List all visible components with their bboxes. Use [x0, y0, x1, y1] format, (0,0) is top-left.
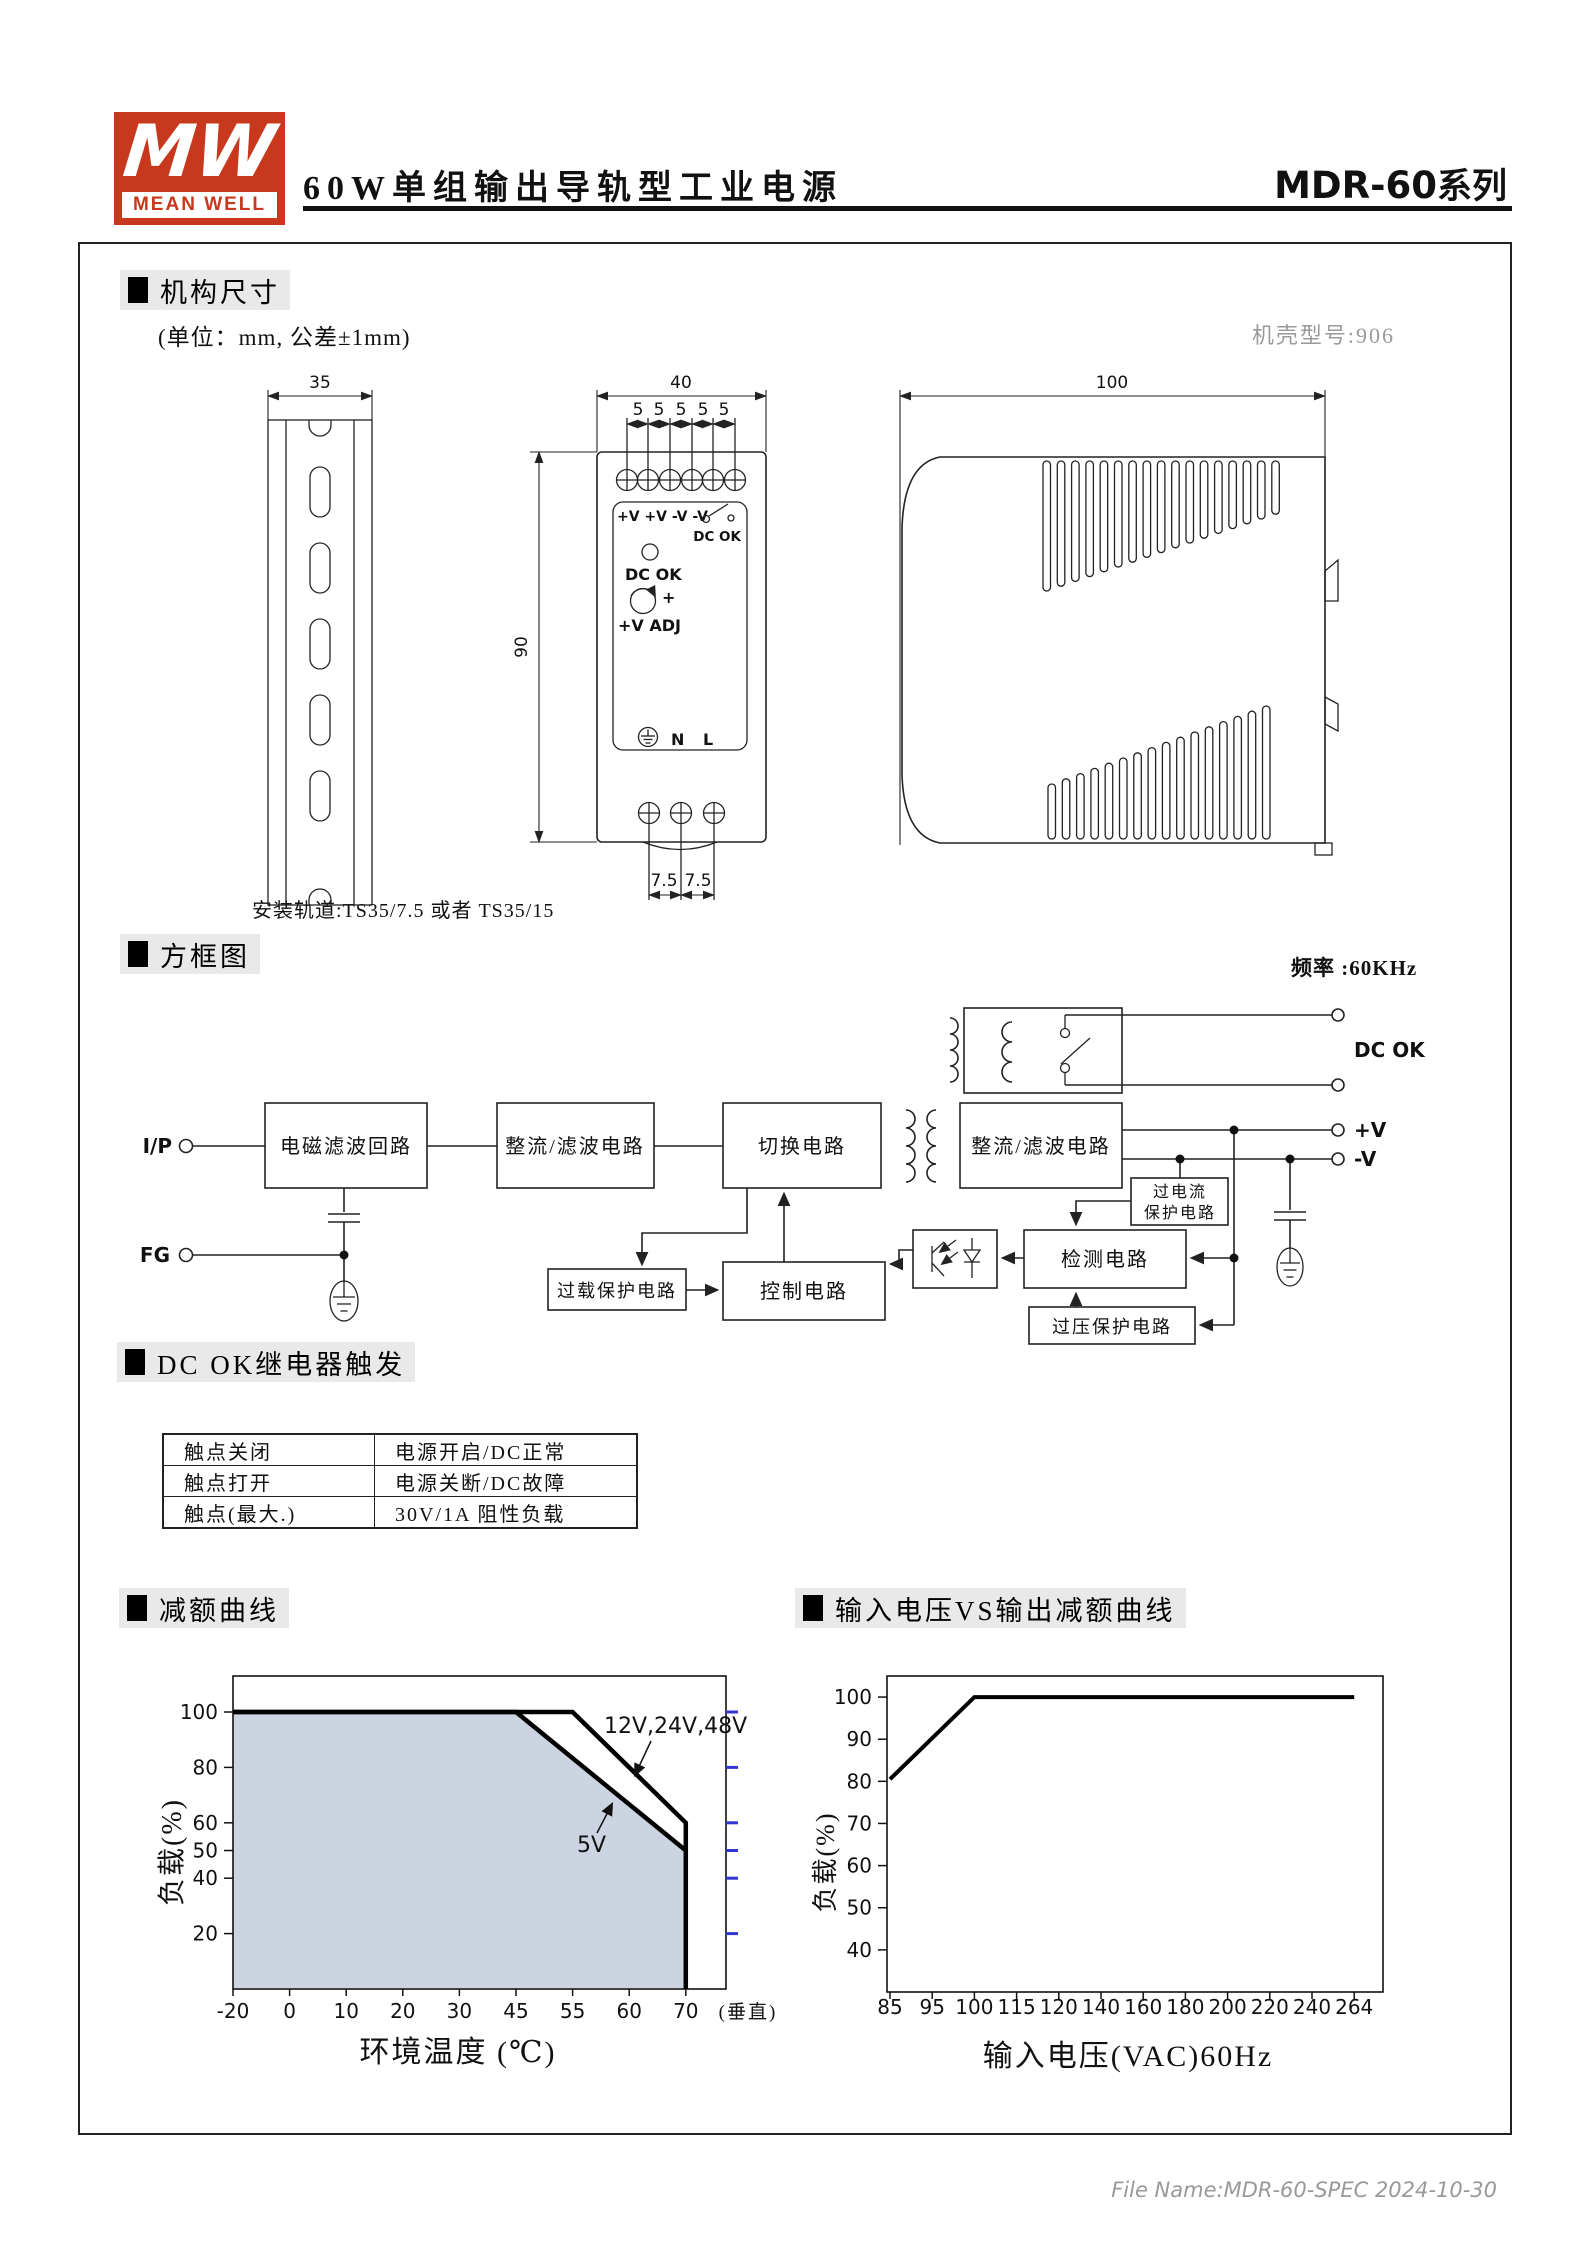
y-tick-label: 60	[193, 1811, 218, 1835]
y-tick-label: 50	[193, 1839, 218, 1863]
y-tick-label: 100	[180, 1700, 218, 1724]
x-tick-label: 140	[1082, 1995, 1120, 2019]
x-axis-title: 输入电压(VAC)60Hz	[983, 2040, 1273, 2073]
x-tick-label: 220	[1251, 1995, 1289, 2019]
y-tick-label: 40	[847, 1938, 872, 1962]
y-tick-label: 80	[193, 1755, 218, 1779]
x-tick-label: 60	[616, 1999, 641, 2023]
y-tick-label: 70	[847, 1811, 872, 1835]
x-tick-label: 120	[1040, 1995, 1078, 2019]
plot-frame	[887, 1676, 1383, 1992]
datasheet-page: MW MEAN WELL 60W单组输出导轨型工业电源 MDR-60系列 机构尺…	[0, 0, 1587, 2245]
y-axis-title: 负载(%)	[156, 1798, 188, 1906]
series-annotation: 5V	[577, 1833, 606, 1858]
x-tick-label: 30	[447, 1999, 472, 2023]
x-tick-label: -20	[217, 1999, 250, 2023]
x-tick-label: 160	[1124, 1995, 1162, 2019]
derating-charts: 1008060504020-20010203045556070(垂直)12V,2…	[0, 0, 1587, 2245]
x-tick-label: 115	[998, 1995, 1036, 2019]
annotation-arrow	[635, 1741, 651, 1775]
x-tick-label: 200	[1209, 1995, 1247, 2019]
y-tick-label: 60	[847, 1854, 872, 1878]
y-tick-label: 40	[193, 1866, 218, 1890]
y-tick-label: 100	[834, 1685, 872, 1709]
series-line	[890, 1697, 1354, 1779]
y-tick-label: 80	[847, 1769, 872, 1793]
series-annotation: 12V,24V,48V	[604, 1714, 747, 1739]
x-tick-label: 10	[333, 1999, 358, 2023]
x-tick-label: 0	[283, 1999, 296, 2023]
x-tick-label: 180	[1166, 1995, 1204, 2019]
y-axis-title: 负载(%)	[811, 1812, 840, 1913]
x-axis-suffix-label: (垂直)	[719, 2001, 778, 2023]
y-tick-label: 50	[847, 1896, 872, 1920]
chart-1: 1009080706050408595100115120140160180200…	[811, 1676, 1383, 2073]
x-tick-label: 70	[673, 1999, 698, 2023]
chart-0: 1008060504020-20010203045556070(垂直)12V,2…	[156, 1676, 777, 2069]
x-tick-label: 45	[503, 1999, 528, 2023]
y-tick-label: 20	[193, 1922, 218, 1946]
x-tick-label: 240	[1293, 1995, 1331, 2019]
x-tick-label: 85	[877, 1995, 902, 2019]
file-name-footer: File Name:MDR-60-SPEC 2024-10-30	[1111, 2178, 1497, 2202]
x-tick-label: 95	[919, 1995, 944, 2019]
x-tick-label: 264	[1335, 1995, 1373, 2019]
x-tick-label: 55	[560, 1999, 585, 2023]
x-axis-title: 环境温度 (℃)	[359, 2036, 556, 2069]
x-tick-label: 20	[390, 1999, 415, 2023]
y-tick-label: 90	[847, 1727, 872, 1751]
x-tick-label: 100	[955, 1995, 993, 2019]
